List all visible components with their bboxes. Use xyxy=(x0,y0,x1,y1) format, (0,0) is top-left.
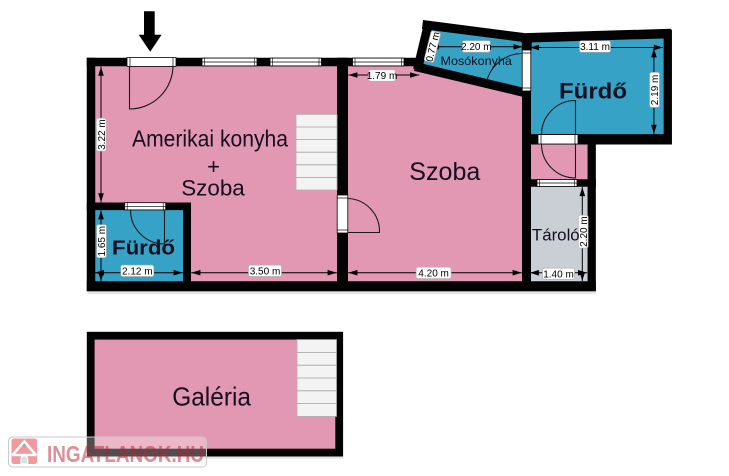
svg-text:3.50 m: 3.50 m xyxy=(250,266,281,277)
svg-text:2.20 m: 2.20 m xyxy=(579,216,590,247)
svg-text:Galéria: Galéria xyxy=(172,382,251,412)
svg-text:Fürdő: Fürdő xyxy=(559,79,627,104)
svg-text:INGATLANOK.HU: INGATLANOK.HU xyxy=(47,441,204,467)
svg-text:1.65 m: 1.65 m xyxy=(97,226,108,257)
svg-text:2.20 m: 2.20 m xyxy=(461,42,492,53)
svg-text:Mosókonyha: Mosókonyha xyxy=(441,54,513,68)
svg-text:2.19 m: 2.19 m xyxy=(650,75,661,106)
svg-text:Amerikai konyha: Amerikai konyha xyxy=(132,125,288,151)
svg-text:Tároló: Tároló xyxy=(532,226,580,245)
svg-text:Szoba: Szoba xyxy=(181,176,245,201)
svg-text:2.12 m: 2.12 m xyxy=(122,266,153,277)
svg-text:Szoba: Szoba xyxy=(409,158,480,186)
svg-text:3.11 m: 3.11 m xyxy=(580,42,610,53)
svg-text:Fürdő: Fürdő xyxy=(112,238,175,260)
svg-text:1.40 m: 1.40 m xyxy=(543,269,574,280)
svg-text:3.22 m: 3.22 m xyxy=(97,119,108,150)
svg-text:1.79 m: 1.79 m xyxy=(367,71,398,82)
svg-text:4.20 m: 4.20 m xyxy=(418,269,449,280)
